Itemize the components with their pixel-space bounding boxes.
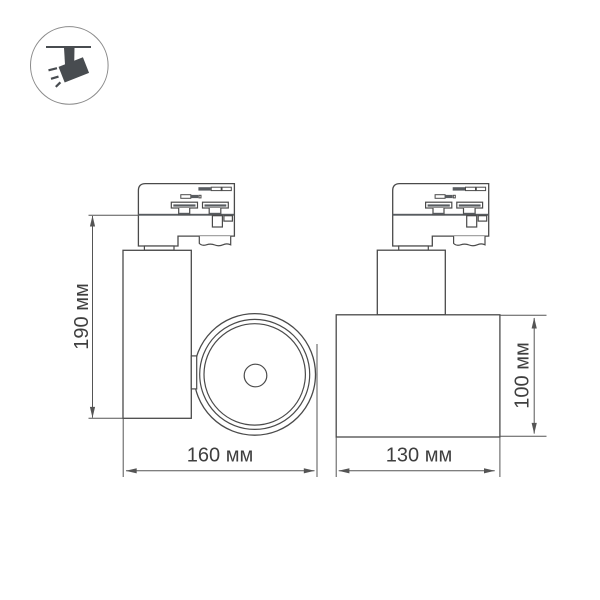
svg-text:100 мм: 100 мм (512, 342, 534, 408)
svg-text:130 мм: 130 мм (386, 445, 452, 467)
svg-text:190 мм: 190 мм (71, 283, 93, 349)
svg-text:160 мм: 160 мм (187, 445, 253, 467)
